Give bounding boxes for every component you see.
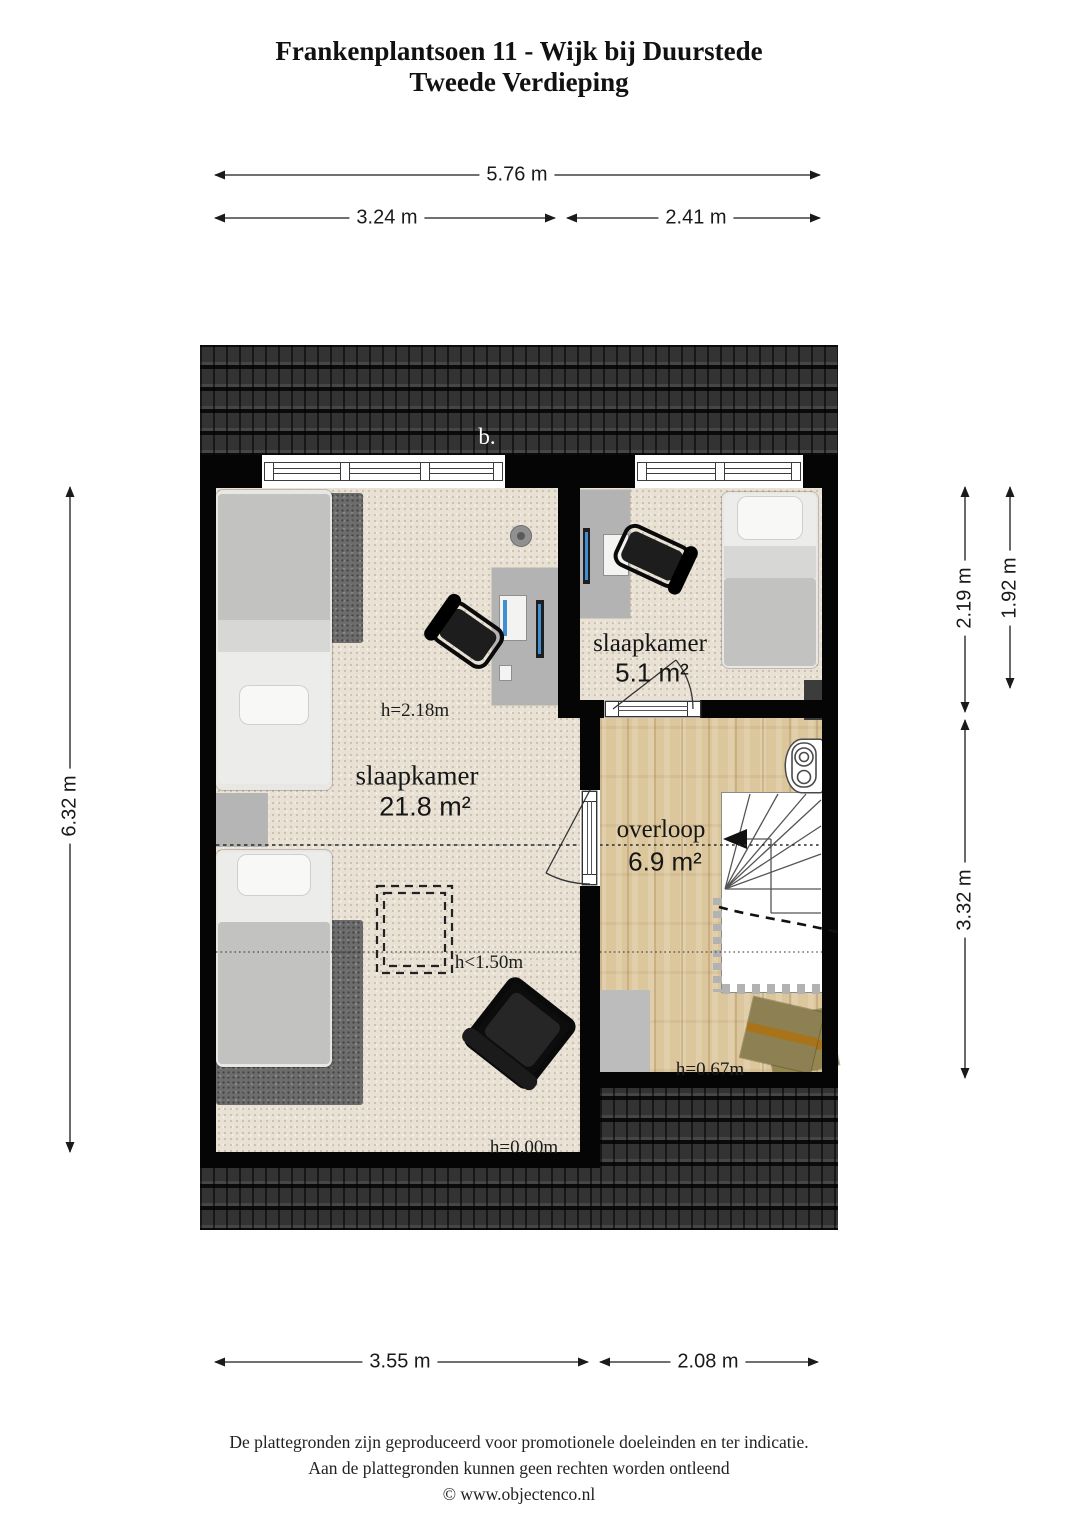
- room-label-landing: overloop: [617, 816, 706, 844]
- storage-block: [600, 990, 650, 1078]
- roof-bottom-right: [600, 1088, 838, 1230]
- window-left: [262, 455, 505, 488]
- wall-top-seg1: [216, 455, 262, 488]
- landing-height-label: h=0.67m: [676, 1059, 744, 1081]
- room-area-landing: 6.9 m²: [628, 847, 702, 878]
- dimension-left: 6.32 m: [59, 768, 82, 843]
- roof-label: b.: [478, 424, 495, 450]
- bed-large-top: [216, 490, 332, 790]
- dimension-bottom-left: 3.55 m: [362, 1351, 437, 1374]
- floorplan-page: Frankenplantsoen 11 - Wijk bij Duurstede…: [0, 0, 1080, 1527]
- stairs-rail-left: [713, 898, 722, 992]
- door-leaf-large-bedroom: [583, 792, 596, 884]
- roof-bottom-left: [200, 1168, 616, 1230]
- wall-landing-upper: [580, 702, 600, 790]
- room-label-bedroom-small: slaapkamer: [593, 630, 707, 658]
- wall-top-seg3: [803, 455, 822, 488]
- footer-disclaimer-1: De plattegronden zijn geproduceerd voor …: [229, 1432, 808, 1453]
- dimension-right-top-outer: 1.92 m: [999, 550, 1022, 625]
- dimension-bottom-right: 2.08 m: [670, 1351, 745, 1374]
- door-leaf-small-bedroom: [606, 702, 700, 716]
- wall-landing-lower: [580, 886, 600, 1168]
- room-area-bedroom-small: 5.1 m²: [615, 658, 689, 689]
- dimension-right-bottom: 3.32 m: [954, 862, 977, 937]
- floor-height-label: h=0.00m: [490, 1137, 558, 1159]
- ceiling-height-label: h=2.18m: [381, 700, 449, 722]
- speaker: [511, 526, 531, 546]
- dimension-top-total: 5.76 m: [479, 164, 554, 187]
- low-ceiling-label: h<1.50m: [455, 952, 523, 974]
- stairs: [722, 793, 822, 992]
- wall-bedroom-divider: [558, 488, 580, 718]
- bed-small-bedroom: [722, 492, 818, 668]
- page-subtitle: Tweede Verdieping: [409, 67, 628, 98]
- dimension-right-top-inner: 2.19 m: [954, 560, 977, 635]
- stairs-rail-bottom: [722, 984, 822, 994]
- roof-top: [200, 345, 838, 455]
- footer-disclaimer-2: Aan de plattegronden kunnen geen rechten…: [308, 1458, 729, 1479]
- wall-small-bedroom-bottom-right: [700, 700, 822, 718]
- wall-left: [200, 455, 216, 1168]
- wall-top-seg2: [505, 455, 635, 488]
- dimension-top-left: 3.24 m: [349, 207, 424, 230]
- dimension-top-right: 2.41 m: [658, 207, 733, 230]
- dresser: [216, 793, 268, 847]
- room-area-bedroom-large: 21.8 m²: [379, 792, 471, 823]
- bed-large-bottom: [216, 850, 332, 1067]
- boiler: [786, 740, 822, 792]
- footer-copyright: © www.objectenco.nl: [443, 1484, 596, 1505]
- window-right: [635, 455, 803, 488]
- room-label-bedroom-large: slaapkamer: [356, 761, 479, 792]
- wall-right: [822, 455, 838, 1088]
- page-title: Frankenplantsoen 11 - Wijk bij Duurstede: [275, 36, 762, 67]
